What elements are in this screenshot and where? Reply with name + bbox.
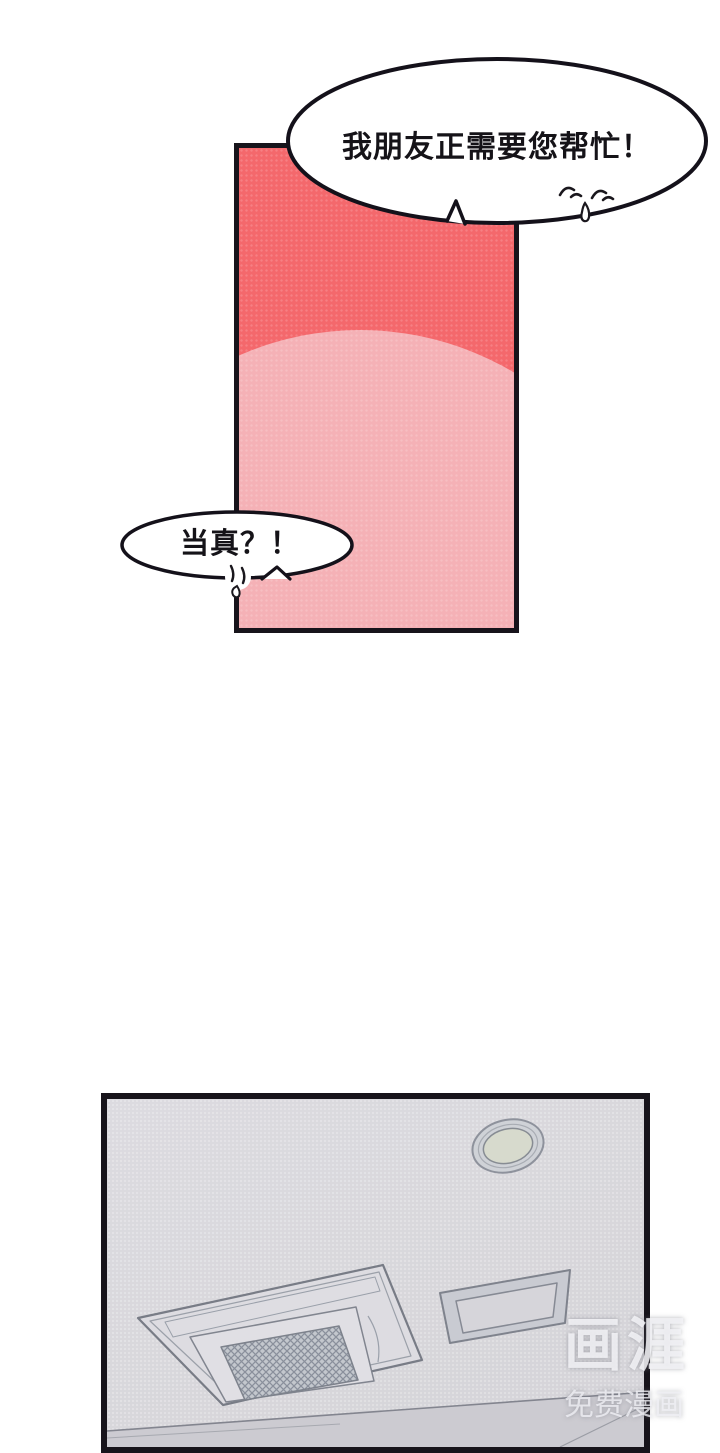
panel-backdrop-circle [234, 330, 519, 633]
speech-bubble-1-text: 我朋友正需要您帮忙！ [300, 131, 694, 165]
ceiling-light-icon [467, 1112, 549, 1180]
ceiling-edge [107, 1392, 644, 1447]
ceiling-scene [107, 1099, 644, 1447]
vent-frame-icon [440, 1270, 570, 1343]
air-conditioner-icon [138, 1265, 422, 1405]
comic-panel-bottom [101, 1093, 650, 1453]
speech-bubble-2-text: 当真？！ [130, 528, 350, 561]
flustered-doodle-icon [560, 188, 613, 221]
